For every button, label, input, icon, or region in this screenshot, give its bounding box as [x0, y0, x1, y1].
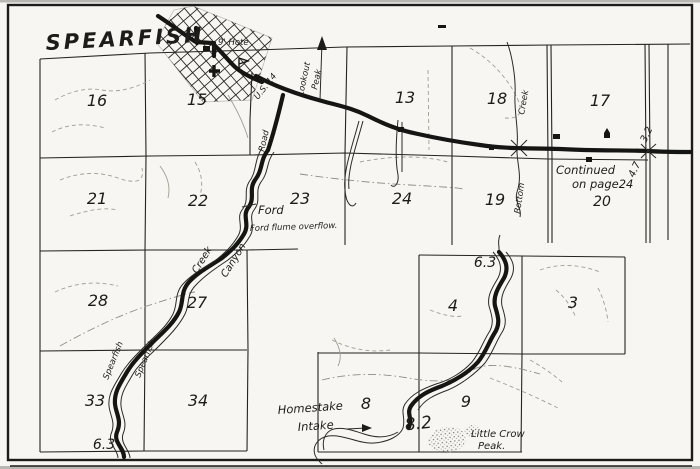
- hotel-note-label: 9' Hote: [218, 38, 249, 48]
- section-34-label: 34: [188, 391, 208, 410]
- mileage-creek-north-label: 6.3: [474, 255, 496, 271]
- section-27-label: 27: [187, 293, 208, 312]
- section-28-label: 28: [88, 291, 108, 310]
- building-sec20-b: [604, 133, 610, 138]
- ink-blob-top-line: [438, 25, 446, 28]
- section-4-label: 4: [448, 296, 458, 315]
- building-sec24: [398, 127, 404, 132]
- little-crow-peak-label-2: Peak.: [478, 441, 505, 452]
- ford-label: Ford: [258, 203, 284, 217]
- section-8-label: 8: [361, 394, 371, 413]
- building-sec19: [489, 146, 494, 150]
- little-crow-peak-label-1: Little Crow: [471, 429, 526, 440]
- section-19-label: 19: [485, 190, 505, 209]
- scanned-map-page: SPEARFISH 16 15 13 18 17 21 22 23 24 19 …: [0, 0, 700, 469]
- section-3-label: 3: [568, 293, 578, 312]
- section-13-label: 13: [395, 88, 415, 107]
- town-building: [203, 46, 210, 51]
- spearfish-township-map: SPEARFISH 16 15 13 18 17 21 22 23 24 19 …: [0, 0, 700, 469]
- section-33-label: 33: [85, 391, 105, 410]
- building-sec20-c: [586, 157, 592, 162]
- homestake-label-2: Intake: [297, 418, 334, 434]
- continued-note-line2: on page24: [572, 177, 633, 191]
- section-9-label: 9: [461, 392, 471, 411]
- mileage-intake-label: 8.2: [404, 413, 433, 436]
- section-22-label: 22: [188, 191, 208, 210]
- section-17-label: 17: [590, 91, 611, 110]
- section-16-label: 16: [87, 91, 107, 110]
- continued-note-line1: Continued: [556, 163, 616, 177]
- mileage-creek-south-label: 6.3: [93, 437, 115, 453]
- scan-edge-top: [0, 0, 700, 3]
- building-sec20-a: [553, 134, 560, 139]
- section-24-label: 24: [392, 189, 412, 208]
- section-21-label: 21: [87, 189, 107, 208]
- section-20-label: 20: [593, 194, 611, 210]
- section-18-label: 18: [487, 89, 507, 108]
- section-15-label: 15: [187, 90, 207, 109]
- section-23-label: 23: [290, 189, 310, 208]
